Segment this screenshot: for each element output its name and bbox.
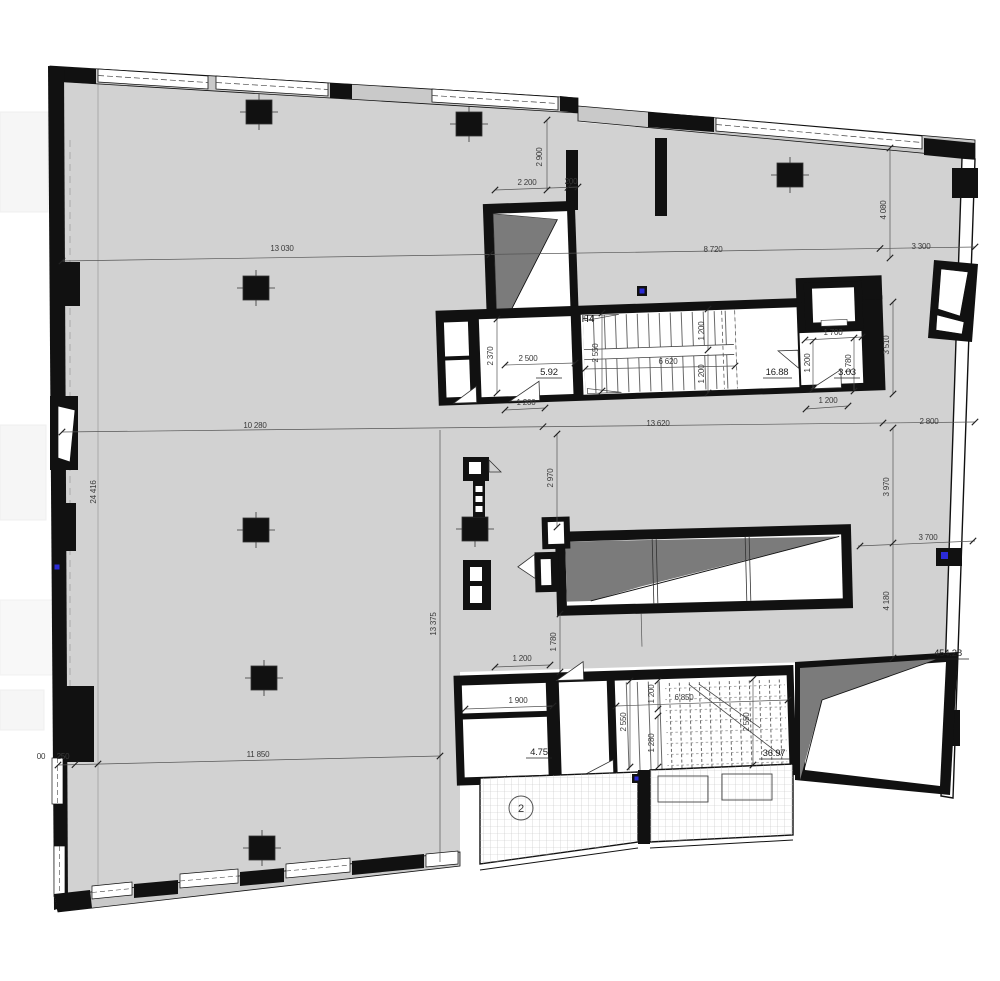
- elevator-shaft: [804, 281, 864, 331]
- dim-4180: 4 180: [882, 591, 891, 611]
- dim-2550-upper: 2 550: [591, 343, 600, 363]
- upper-shaft: [483, 201, 579, 322]
- riser-box: [936, 548, 962, 566]
- dim-1200-flight-a: 1 200: [697, 321, 706, 341]
- floor-plan-canvas: 2 900 2 200 200 13 030 8 720 3 300 4 080…: [0, 0, 1000, 981]
- dim-2970: 2 970: [546, 468, 555, 488]
- room-label-h4: Н4: [582, 314, 595, 325]
- window-bottom-4: [426, 851, 458, 867]
- floor-plan-drawing: 2 900 2 200 200 13 030 8 720 3 300 4 080…: [0, 0, 1000, 981]
- vestibule-cell: [445, 360, 470, 398]
- dim-3700: 3 700: [918, 533, 938, 542]
- dim-1900: 1 900: [508, 696, 528, 705]
- area-5-92: 5.92: [540, 367, 558, 378]
- lower-ramp-wedge: [795, 652, 958, 795]
- terrace-number: 2: [518, 803, 524, 815]
- stair-run-upper: [581, 309, 738, 394]
- dim-13375: 13 375: [429, 612, 438, 636]
- dim-2500: 2 500: [518, 354, 538, 363]
- vestibule-cell: [444, 322, 469, 357]
- dim-200: 200: [565, 177, 578, 186]
- dim-11850: 11 850: [247, 750, 270, 759]
- pilaster: [952, 168, 978, 198]
- dim-3510: 3 510: [882, 335, 891, 355]
- dim-24416: 24 416: [89, 480, 98, 504]
- dim-13620: 13 620: [646, 419, 670, 428]
- dim-8720: 8 720: [703, 245, 723, 254]
- pilaster: [56, 503, 76, 551]
- dim-1200-door-right: 1 200: [818, 396, 838, 405]
- dim-1700: 1 700: [823, 328, 843, 337]
- dim-4080: 4 080: [879, 200, 888, 220]
- pilaster: [62, 686, 94, 762]
- dim-6850: 6 850: [674, 693, 694, 702]
- dim-1780-mid: 1 780: [549, 632, 558, 652]
- dim-10280: 10 280: [243, 421, 267, 430]
- dim-1200-lower-flight: 1 200: [647, 684, 656, 704]
- dim-1200-door-left: 1 200: [516, 398, 536, 407]
- dim-250: 250: [57, 752, 70, 761]
- dim-1200-elev: 1 200: [803, 353, 812, 373]
- dim-2550-lower-left: 2 550: [619, 712, 628, 732]
- dim-00: 00: [37, 752, 46, 761]
- dim-2200: 2 200: [517, 178, 537, 187]
- dim-2370: 2 370: [486, 346, 495, 366]
- dim-3970: 3 970: [882, 477, 891, 497]
- lower-cell: [559, 681, 610, 774]
- area-454-28: 454.28: [934, 648, 962, 659]
- dim-1200-flight-b: 1 200: [697, 364, 706, 384]
- pilaster: [62, 262, 80, 306]
- dim-3300: 3 300: [911, 242, 931, 251]
- window-right: [928, 260, 978, 342]
- dim-2800: 2 800: [919, 417, 939, 426]
- wall-stub: [655, 138, 667, 216]
- window-left-1: [50, 396, 78, 470]
- utility-symbol-icon: [941, 552, 948, 559]
- window-left-3: [54, 846, 65, 896]
- dim-2550-lower-right: 2 550: [742, 712, 751, 732]
- dim-2900: 2 900: [535, 147, 544, 167]
- dim-13030: 13 030: [270, 244, 294, 253]
- dim-1280-lower-flight: 1 280: [647, 733, 656, 753]
- dim-6620: 6 620: [658, 357, 678, 366]
- area-4-75: 4.75: [530, 747, 548, 758]
- area-36-97: 36.97: [763, 748, 786, 759]
- dim-1200-lower-door: 1 200: [512, 654, 532, 663]
- area-16-88: 16.88: [766, 367, 789, 378]
- area-3-03: 3.03: [838, 367, 856, 378]
